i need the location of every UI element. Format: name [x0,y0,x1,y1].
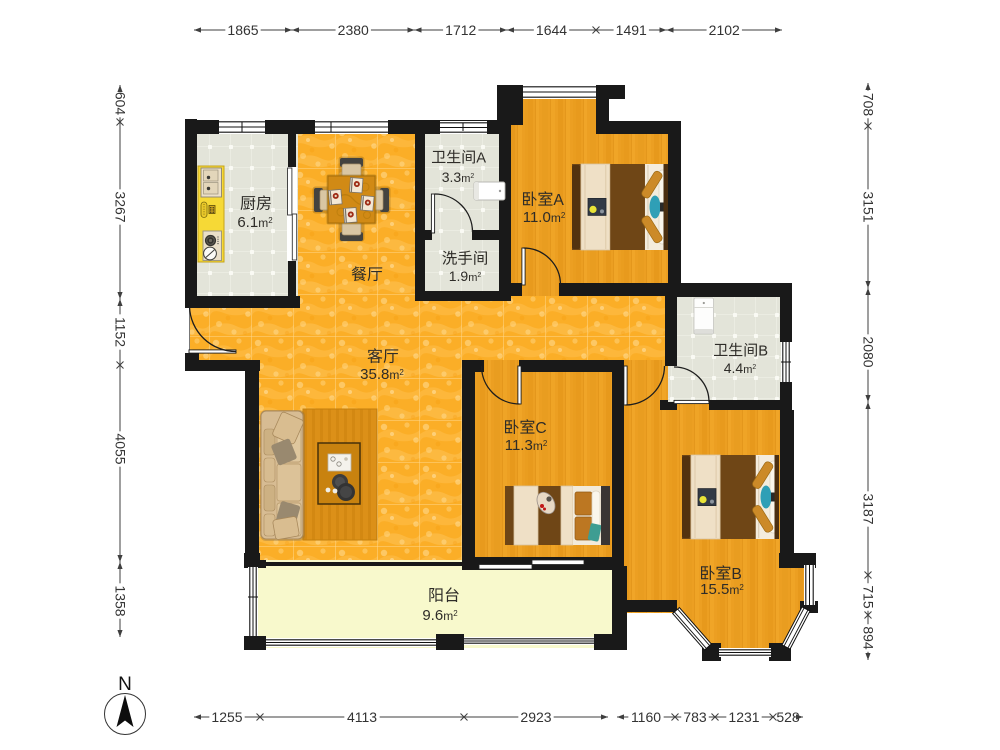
svg-text:1255: 1255 [211,709,242,725]
svg-text:715: 715 [860,585,876,609]
svg-text:3267: 3267 [112,191,128,222]
svg-text:2380: 2380 [338,22,369,38]
svg-text:1152: 1152 [112,317,128,347]
svg-text:4055: 4055 [112,433,128,464]
svg-text:A: A [553,192,564,209]
svg-text:9.6m2: 9.6m2 [422,607,458,624]
svg-text:1712: 1712 [445,22,476,38]
svg-text:11.3m2: 11.3m2 [505,437,548,454]
svg-text:2080: 2080 [860,336,876,367]
svg-text:1865: 1865 [227,22,258,38]
svg-text:35.8m2: 35.8m2 [360,366,404,383]
svg-text:C: C [535,420,546,437]
svg-text:604: 604 [112,92,128,116]
svg-text:B: B [731,566,741,583]
svg-text:708: 708 [860,93,876,117]
svg-text:N: N [118,674,132,695]
svg-text:783: 783 [683,709,707,725]
svg-text:3187: 3187 [860,493,876,524]
svg-text:2102: 2102 [709,22,740,38]
svg-text:11.0m2: 11.0m2 [523,209,566,226]
svg-text:1231: 1231 [728,709,759,725]
svg-text:A: A [476,150,486,166]
svg-text:3151: 3151 [860,191,876,222]
svg-text:1358: 1358 [112,585,128,616]
svg-text:15.5m2: 15.5m2 [700,581,744,598]
svg-text:1160: 1160 [631,709,661,725]
svg-text:2923: 2923 [520,709,551,725]
svg-text:B: B [758,343,768,359]
svg-text:1491: 1491 [616,22,647,38]
svg-text:4113: 4113 [347,709,377,725]
svg-text:6.1m2: 6.1m2 [237,214,273,231]
svg-text:1644: 1644 [536,22,567,38]
svg-text:894: 894 [860,626,876,650]
